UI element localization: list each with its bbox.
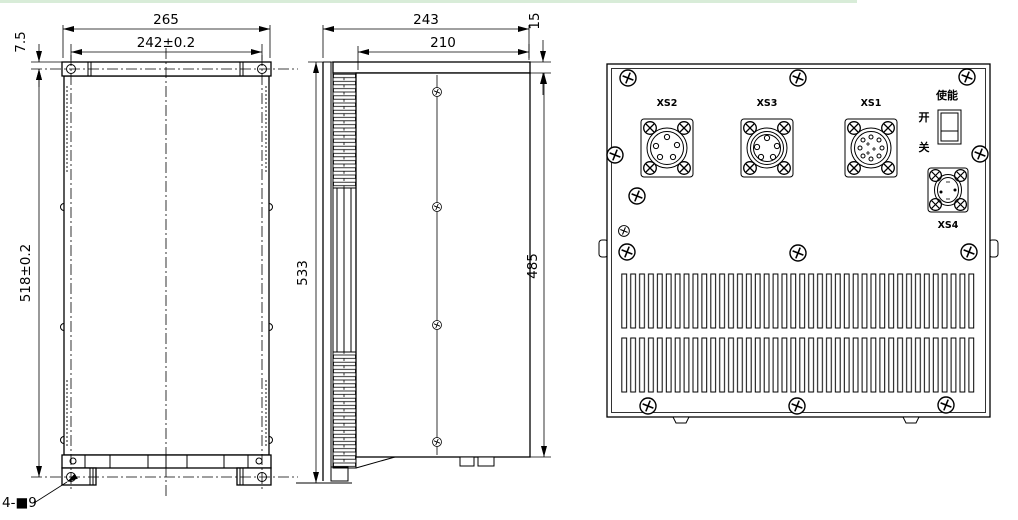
hole-callout-text: 4-■9 [2, 495, 37, 511]
side-body [356, 73, 530, 457]
screw-icon [930, 199, 942, 211]
screw-icon [619, 226, 630, 237]
screw-icon [955, 199, 967, 211]
switch-off-label: 关 [919, 140, 930, 154]
dim-518-text: 518±0.2 [18, 244, 34, 303]
screw-icon [433, 438, 442, 447]
screw-icon [790, 70, 806, 86]
dim-242: 242±0.2 [71, 35, 262, 60]
top-highlight-strip [0, 0, 857, 3]
side-view: 243 210 15 533 485 [295, 12, 551, 483]
screw-icon [938, 397, 954, 413]
front-view: 265 242±0.2 7.5 518±0.2 4-■9 [2, 12, 298, 511]
hole-callout: 4-■9 [2, 482, 67, 511]
screw-icon [955, 170, 967, 182]
side-foot [460, 457, 474, 466]
dim-7p5: 7.5 [13, 31, 63, 87]
dim-533-text: 533 [295, 260, 311, 286]
screw-icon [629, 188, 645, 204]
switch-title-label: 使能 [935, 88, 958, 102]
screw-icon [607, 147, 623, 163]
rear-foot [903, 417, 919, 423]
screw-icon [930, 170, 942, 182]
screw-icon [620, 70, 636, 86]
vent-grille-top [620, 272, 976, 330]
rear-foot [673, 417, 689, 423]
front-body [64, 76, 269, 455]
screw-icon [433, 88, 442, 97]
screw-icon [433, 321, 442, 330]
dim-242-text: 242±0.2 [137, 35, 196, 51]
side-top-lip [333, 62, 530, 73]
xs2-label: XS2 [657, 98, 678, 109]
xs4-label: XS4 [938, 220, 959, 231]
screw-icon [433, 203, 442, 212]
screw-icon [789, 398, 805, 414]
xs1-label: XS1 [861, 98, 882, 109]
dim-15-text: 15 [527, 12, 543, 29]
front-bottom-tabs [62, 468, 271, 485]
screw-icon [619, 244, 635, 260]
engineering-drawing-page: 265 242±0.2 7.5 518±0.2 4-■9 [0, 0, 1018, 520]
side-fins-bottom [333, 352, 356, 468]
dim-7p5-text: 7.5 [13, 31, 29, 52]
dim-485-text: 485 [525, 253, 541, 279]
vent-grille-bottom [620, 336, 976, 394]
dim-210-text: 210 [430, 35, 456, 51]
dim-243-text: 243 [413, 12, 439, 28]
switch-on-label: 开 [919, 111, 930, 124]
dim-243: 243 [323, 12, 529, 58]
screw-icon [959, 69, 975, 85]
rear-view: XS2 XS3 [599, 64, 998, 423]
side-foot [478, 457, 494, 466]
dim-533: 533 [295, 62, 333, 483]
screw-icon [640, 398, 656, 414]
front-bottom-rail [62, 455, 271, 468]
side-bottom-chamfer [356, 457, 395, 468]
xs3-label: XS3 [757, 98, 778, 109]
side-fins-top [333, 73, 356, 188]
side-fins-middle [333, 188, 356, 352]
screw-icon [972, 146, 988, 162]
dim-265-text: 265 [153, 12, 179, 28]
screw-icon [961, 244, 977, 260]
screw-icon [790, 245, 806, 261]
dim-518: 518±0.2 [18, 69, 39, 477]
technical-drawing: 265 242±0.2 7.5 518±0.2 4-■9 [0, 0, 1018, 520]
